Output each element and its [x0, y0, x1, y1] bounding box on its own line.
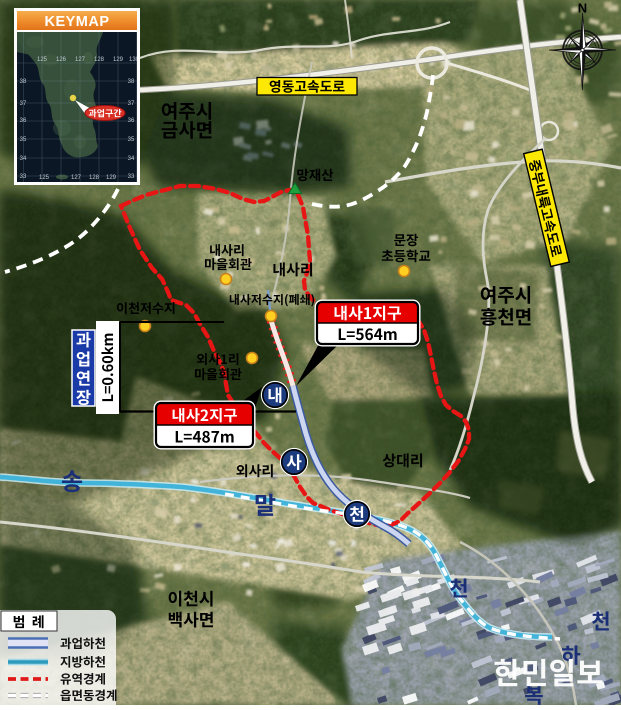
svg-text:128: 128 — [89, 175, 100, 181]
svg-text:34: 34 — [20, 156, 27, 162]
svg-text:KEYMAP: KEYMAP — [44, 14, 109, 30]
svg-text:125: 125 — [37, 57, 48, 63]
svg-text:36: 36 — [128, 118, 135, 124]
svg-text:125: 125 — [39, 175, 50, 181]
svg-text:33: 33 — [128, 174, 135, 180]
svg-text:35: 35 — [20, 137, 27, 143]
svg-text:126: 126 — [56, 57, 67, 63]
svg-text:127: 127 — [75, 57, 86, 63]
svg-text:38: 38 — [20, 79, 27, 85]
svg-text:34: 34 — [128, 156, 135, 162]
svg-text:36: 36 — [20, 118, 27, 124]
svg-text:38: 38 — [128, 79, 135, 85]
svg-text:128: 128 — [94, 57, 105, 63]
svg-text:37: 37 — [128, 101, 135, 107]
svg-text:127: 127 — [71, 175, 82, 181]
svg-text:129: 129 — [113, 57, 124, 63]
svg-text:35: 35 — [128, 137, 135, 143]
svg-text:37: 37 — [20, 101, 27, 107]
svg-text:33: 33 — [20, 174, 27, 180]
svg-text:129: 129 — [106, 175, 117, 181]
